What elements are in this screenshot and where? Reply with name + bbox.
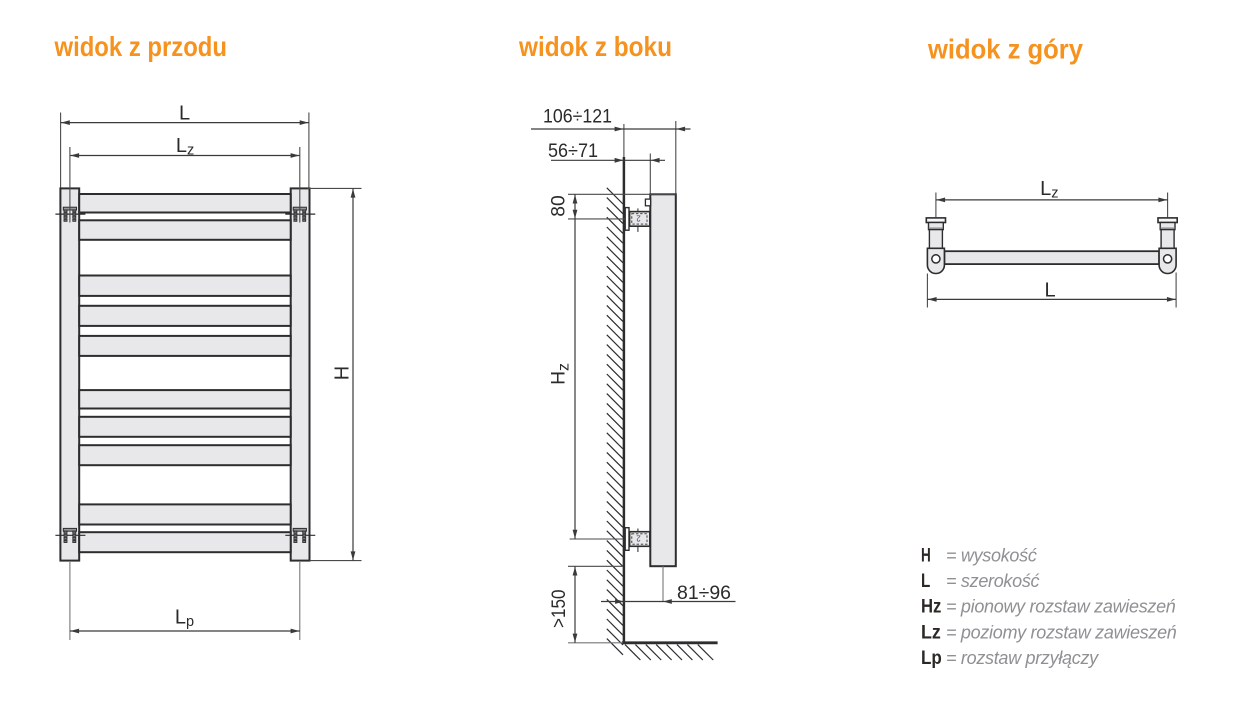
svg-text:= wysokość: = wysokość [946, 546, 1037, 566]
svg-text:56÷71: 56÷71 [548, 141, 598, 162]
svg-text:= pionowy rozstaw zawieszeń: = pionowy rozstaw zawieszeń [946, 597, 1176, 617]
svg-text:Lz: Lz [1040, 178, 1058, 202]
svg-text:L: L [179, 103, 190, 125]
svg-text:80: 80 [548, 195, 569, 216]
svg-text:H: H [332, 366, 354, 380]
svg-text:= rozstaw przyłączy: = rozstaw przyłączy [946, 648, 1099, 668]
svg-text:widok z góry: widok z góry [927, 34, 1083, 65]
svg-text:2: 2 [636, 534, 641, 543]
svg-text:Lz: Lz [921, 622, 941, 643]
svg-text:Hz: Hz [921, 597, 941, 618]
svg-text:Lp: Lp [921, 648, 942, 669]
svg-text:Hz: Hz [548, 363, 572, 385]
svg-text:widok z przodu: widok z przodu [54, 31, 227, 62]
svg-text:Lz: Lz [176, 135, 194, 159]
svg-text:L: L [921, 571, 931, 592]
svg-text:= szerokość: = szerokość [946, 571, 1040, 591]
svg-text:= poziomy rozstaw zawieszeń: = poziomy rozstaw zawieszeń [946, 622, 1177, 642]
svg-text:81÷96: 81÷96 [677, 583, 731, 604]
svg-text:2: 2 [636, 213, 641, 222]
svg-text:Lp: Lp [175, 607, 194, 631]
svg-text:106÷121: 106÷121 [543, 107, 612, 128]
svg-text:L: L [1044, 280, 1055, 302]
svg-text:widok z boku: widok z boku [518, 31, 672, 62]
svg-text:H: H [921, 546, 931, 567]
svg-text:>150: >150 [549, 589, 570, 628]
